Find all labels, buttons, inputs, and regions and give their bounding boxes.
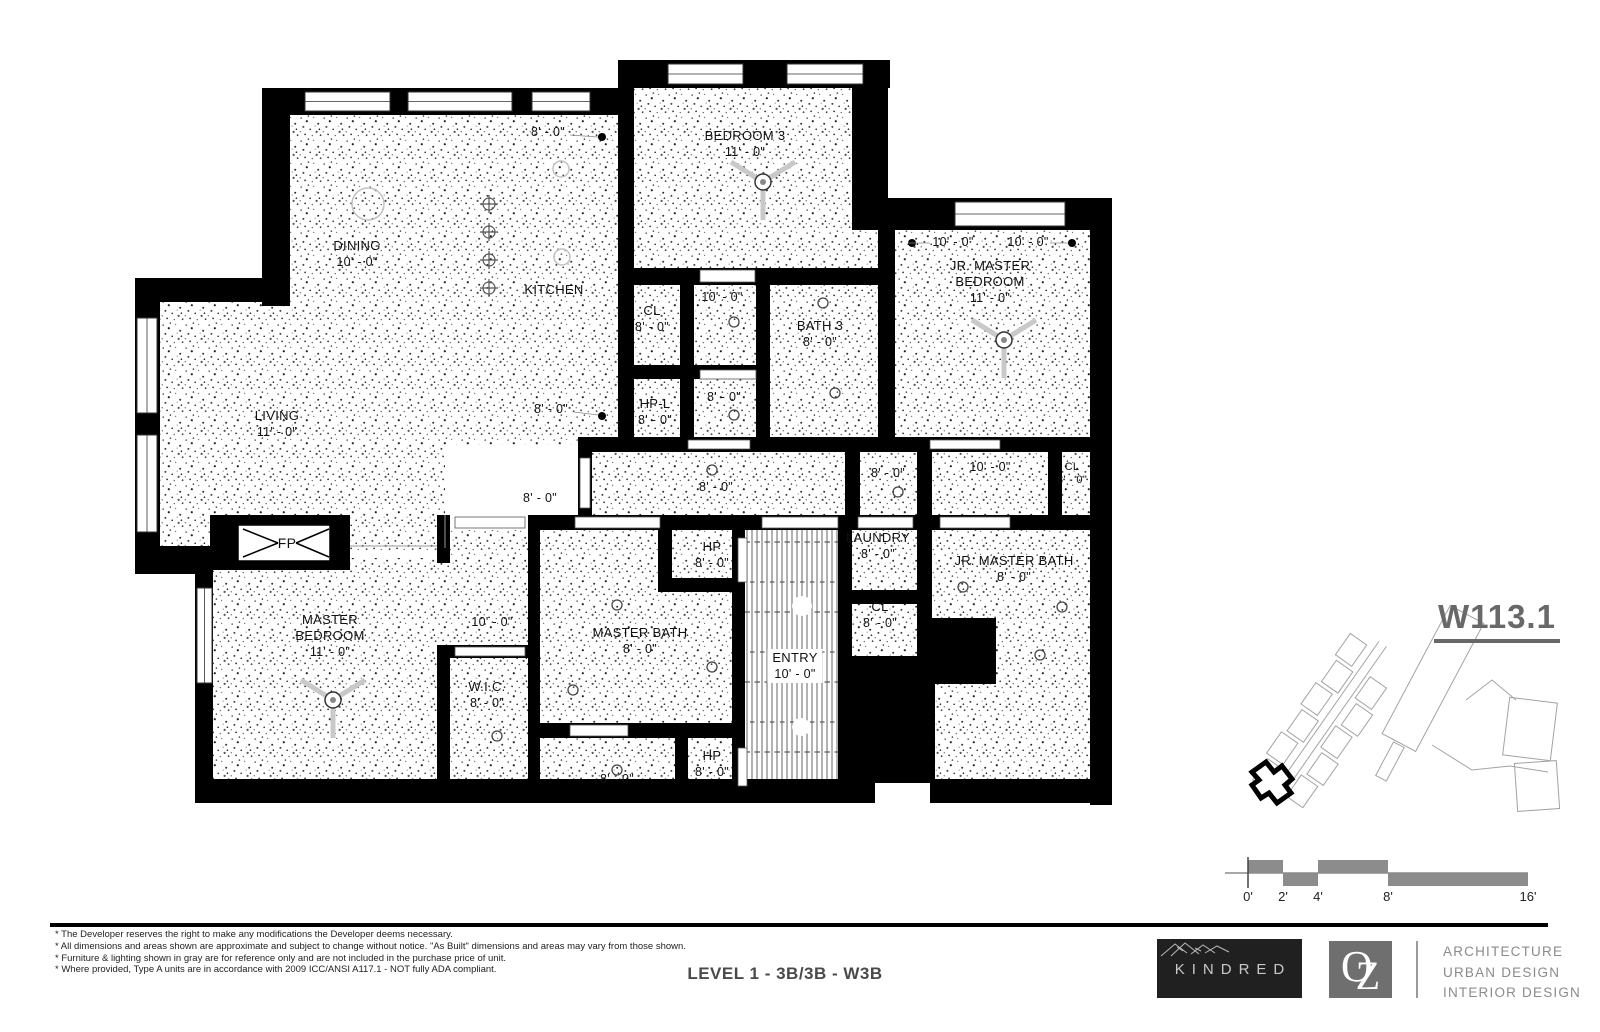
note-line: * The Developer reserves the right to ma… bbox=[55, 929, 686, 941]
highlighted-unit bbox=[1252, 762, 1292, 803]
scale-label-2: 2' bbox=[1278, 889, 1288, 904]
fireplace-label: FP bbox=[278, 536, 297, 550]
room-label-entry: ENTRY10' - 0" bbox=[767, 649, 822, 683]
title-block-rule bbox=[50, 923, 1548, 927]
dim-label-mid-room: 8' - 0" bbox=[707, 389, 741, 405]
kindred-logo: KINDRED bbox=[1157, 939, 1302, 998]
service-architecture: ARCHITECTURE bbox=[1443, 942, 1581, 963]
dim-label-kitchen-ceiling-top: 8' - 0" bbox=[531, 124, 565, 140]
scale-label-0: 0' bbox=[1243, 889, 1253, 904]
service-urban-design: URBAN DESIGN bbox=[1443, 963, 1581, 984]
oz-logo: O Z bbox=[1329, 941, 1392, 998]
dim-label-corridor: 8' - 0" bbox=[699, 479, 733, 495]
room-label-wic: W.I.C.8' - 0" bbox=[468, 679, 505, 711]
dim-label-jr-ceiling-right: 10' - 0" bbox=[1007, 234, 1048, 250]
dim-label-jr-ceiling-left: 10' - 0" bbox=[932, 234, 973, 250]
note-line: * Where provided, Type A units are in ac… bbox=[55, 964, 686, 976]
room-label-bedroom3: BEDROOM 311' - 0" bbox=[705, 128, 786, 160]
sheet-title: LEVEL 1 - 3B/3B - W3B bbox=[687, 964, 882, 984]
scale-label-8: 8' bbox=[1383, 889, 1393, 904]
sheet-number: W113.1 bbox=[1434, 598, 1560, 643]
scale-label-16: 16' bbox=[1520, 889, 1537, 904]
scale-label-4: 4' bbox=[1313, 889, 1323, 904]
note-line: * Furniture & lighting shown in gray are… bbox=[55, 953, 686, 965]
scale-bar bbox=[1225, 857, 1528, 888]
floor-plan-sheet: DINING10' - 0" KITCHEN BEDROOM 311' - 0"… bbox=[0, 0, 1600, 1032]
floor-plan-svg bbox=[0, 0, 1600, 1032]
entry-light-icon bbox=[792, 718, 810, 736]
room-label-dining: DINING10' - 0" bbox=[333, 238, 380, 270]
room-label-hp-bottom: HP8' - 0" bbox=[695, 748, 729, 780]
dim-label-toilet: 8' - 0" bbox=[600, 771, 634, 787]
dim-label-vestibule: 10' - 0" bbox=[471, 614, 512, 630]
oz-services: ARCHITECTURE URBAN DESIGN INTERIOR DESIG… bbox=[1443, 942, 1581, 1004]
room-label-laundry: LAUNDRY8' - 0" bbox=[846, 530, 910, 562]
dim-label-upper-hall: 10' - 0" bbox=[701, 289, 742, 305]
dim-label-corridor-nook: 8' - 0" bbox=[871, 465, 905, 481]
room-label-hp-l: HP-L8' - 0" bbox=[638, 396, 672, 428]
room-label-master-bedroom: MASTER BEDROOM11' - 0" bbox=[283, 612, 378, 660]
room-label-living: LIVING11' - 0" bbox=[255, 408, 299, 440]
room-label-jr-master-bath: JR. MASTER BATH8' - 0" bbox=[954, 553, 1073, 585]
room-label-hp-top: HP8' - 0" bbox=[695, 539, 729, 571]
room-label-jr-master-bedroom: JR. MASTER BEDROOM11' - 0" bbox=[930, 258, 1050, 306]
room-label-cl-right: CL8' - 0" bbox=[1057, 461, 1087, 487]
dim-label-kitchen-ceiling-left: 8' - 0" bbox=[534, 401, 568, 417]
disclaimer-notes: * The Developer reserves the right to ma… bbox=[55, 929, 686, 976]
room-label-kitchen: KITCHEN bbox=[524, 282, 583, 298]
room-label-cl-upper: CL8' - 0" bbox=[635, 303, 669, 335]
service-interior-design: INTERIOR DESIGN bbox=[1443, 983, 1581, 1004]
logo-divider bbox=[1416, 941, 1418, 998]
mountain-icon bbox=[1157, 939, 1233, 959]
room-label-bath3: BATH 38' - 0" bbox=[797, 318, 843, 350]
room-label-master-bath: MASTER BATH8' - 0" bbox=[593, 625, 688, 657]
note-line: * All dimensions and areas shown are app… bbox=[55, 941, 686, 953]
dim-label-corridor-left: 8' - 0" bbox=[523, 490, 557, 506]
oz-letter-z: Z bbox=[1356, 956, 1380, 996]
entry-light-icon bbox=[792, 596, 812, 616]
kindred-wordmark: KINDRED bbox=[1168, 961, 1292, 978]
dim-label-corridor-right: 10' - 0" bbox=[969, 459, 1010, 475]
room-label-cl-mid: CL8' - 0" bbox=[863, 599, 897, 631]
